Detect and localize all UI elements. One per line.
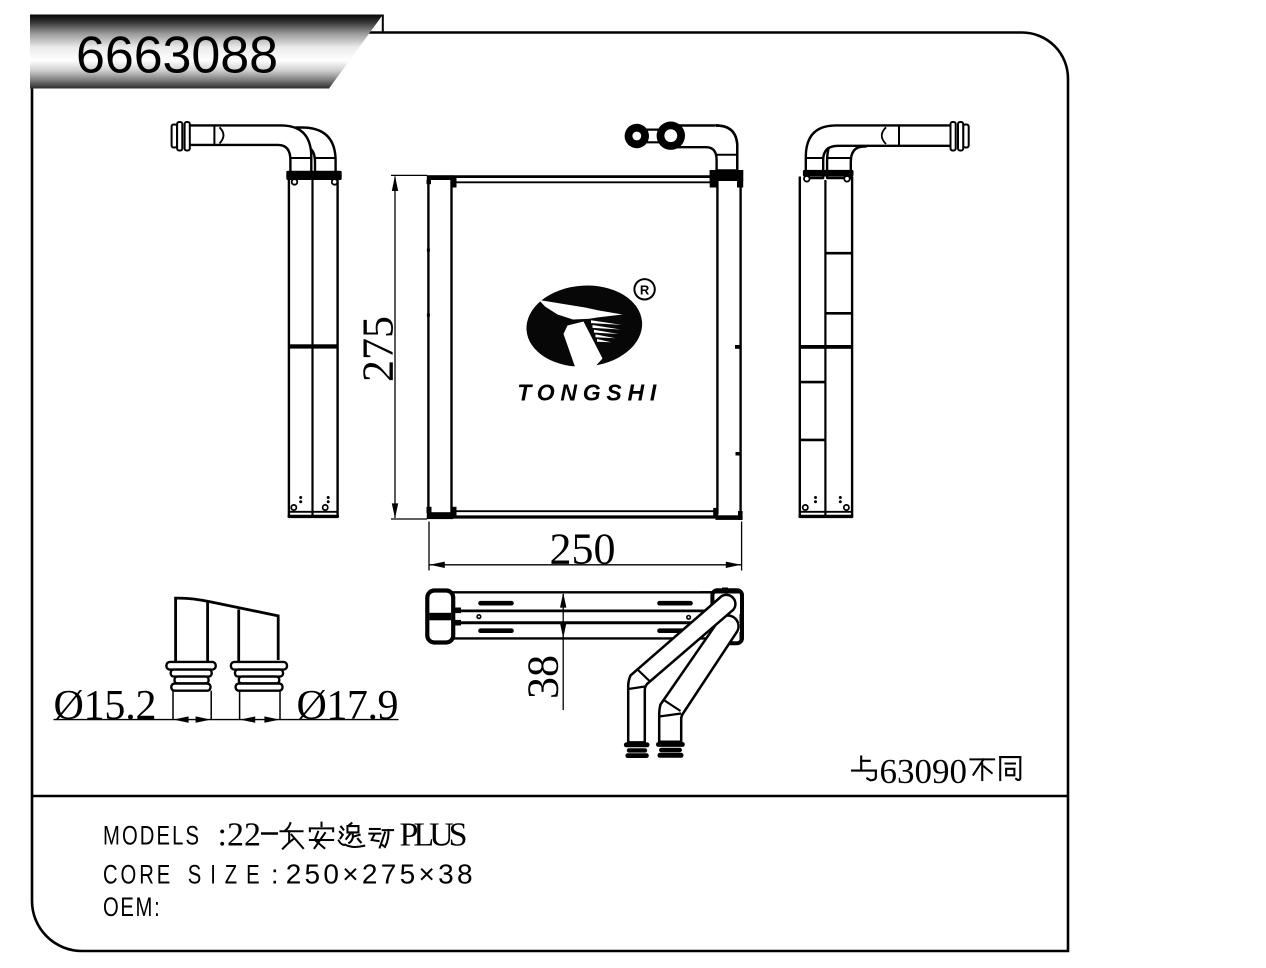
- svg-text:Ø17.9: Ø17.9: [297, 683, 399, 729]
- svg-text:TONGSHI: TONGSHI: [517, 380, 657, 406]
- svg-text:275: 275: [354, 316, 403, 382]
- svg-text:OEM:: OEM:: [103, 892, 161, 923]
- svg-text:CORE: CORE: [103, 860, 173, 891]
- svg-text:SIZE: SIZE: [188, 860, 269, 891]
- svg-text:6663088: 6663088: [76, 27, 278, 85]
- svg-text:R: R: [640, 282, 650, 297]
- svg-text:Ø15.2: Ø15.2: [54, 683, 157, 729]
- svg-text::: :: [271, 859, 279, 889]
- svg-text:38: 38: [519, 655, 568, 699]
- svg-text:PLUS: PLUS: [400, 817, 468, 854]
- svg-text:MODELS: MODELS: [103, 821, 201, 852]
- svg-text:63090: 63090: [880, 752, 968, 791]
- svg-text::22: :22: [218, 817, 261, 854]
- svg-text:250: 250: [550, 525, 616, 574]
